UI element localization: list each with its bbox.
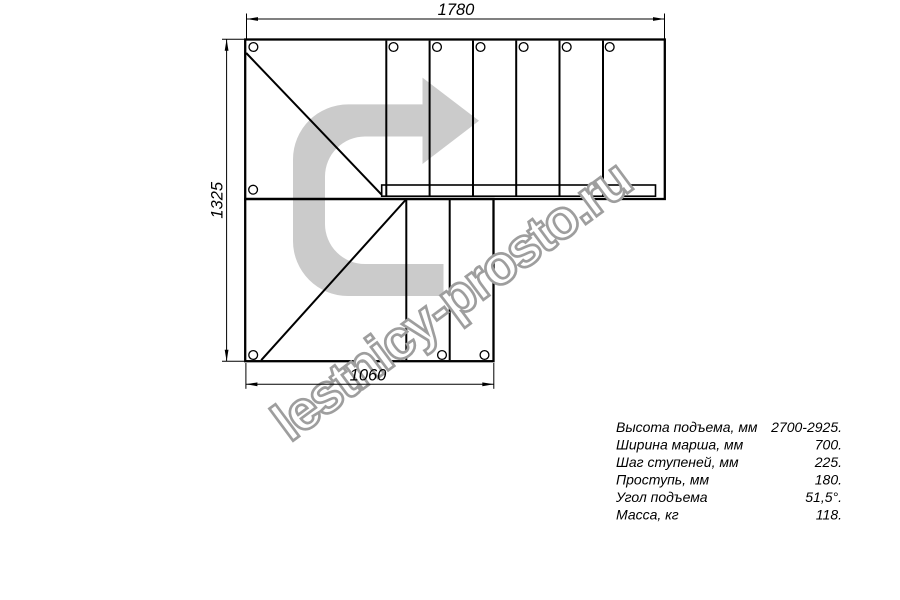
svg-text:Проступь, мм: Проступь, мм xyxy=(616,472,710,488)
svg-text:2700-2925.: 2700-2925. xyxy=(770,419,842,435)
svg-text:1325: 1325 xyxy=(209,181,227,219)
svg-text:Угол подъема: Угол подъема xyxy=(615,489,708,505)
svg-text:180.: 180. xyxy=(815,472,842,488)
svg-text:Ширина марша, мм: Ширина марша, мм xyxy=(616,437,744,453)
svg-text:1780: 1780 xyxy=(438,1,476,19)
svg-text:51,5°.: 51,5°. xyxy=(805,489,842,505)
svg-text:Масса, кг: Масса, кг xyxy=(616,507,679,523)
svg-text:700.: 700. xyxy=(815,437,842,453)
svg-text:118.: 118. xyxy=(816,507,842,523)
svg-text:1060: 1060 xyxy=(350,366,388,384)
svg-text:225.: 225. xyxy=(814,454,842,470)
svg-text:Высота подъема, мм: Высота подъема, мм xyxy=(616,419,758,435)
svg-text:Шаг ступеней, мм: Шаг ступеней, мм xyxy=(616,454,739,470)
